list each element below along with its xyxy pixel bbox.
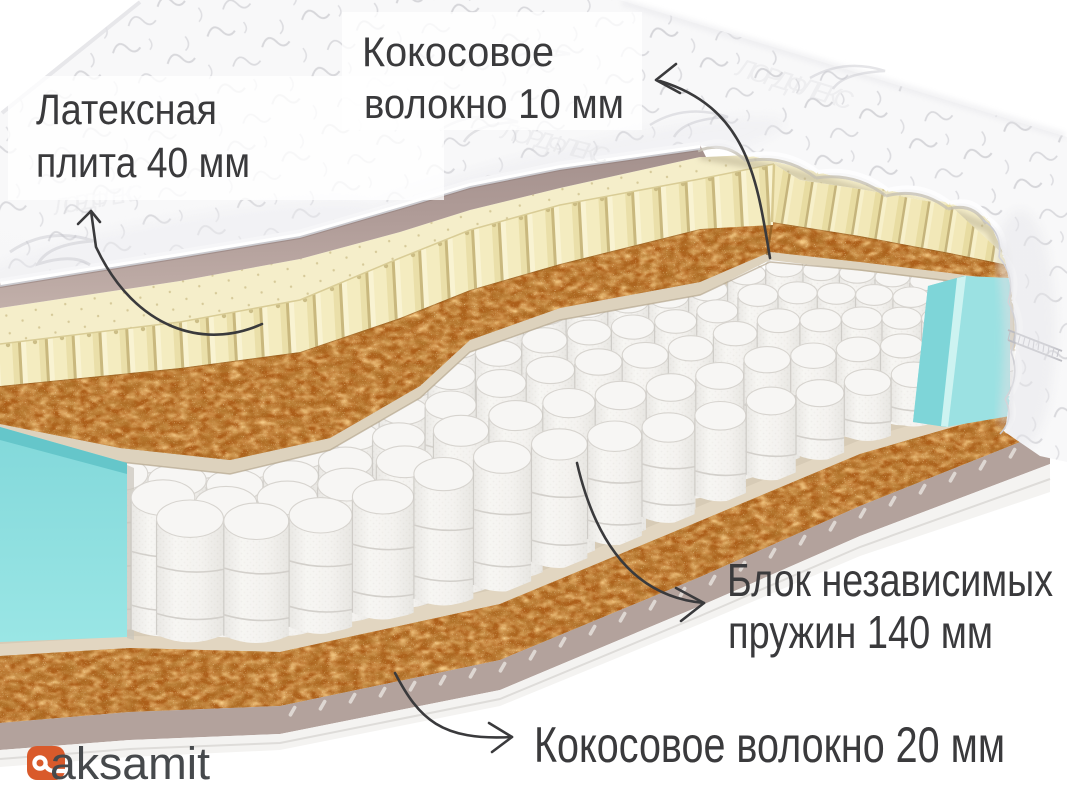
- svg-text:aksamit: aksamit: [50, 738, 211, 789]
- svg-text:Кокосовое волокно 20 мм: Кокосовое волокно 20 мм: [534, 717, 1005, 773]
- svg-text:Кокосовое: Кокосовое: [362, 28, 554, 75]
- svg-text:плита 40 мм: плита 40 мм: [36, 139, 250, 187]
- svg-text:волокно 10 мм: волокно 10 мм: [364, 80, 624, 127]
- svg-text:Блок независимых: Блок независимых: [727, 554, 1053, 606]
- svg-text:Латексная: Латексная: [36, 86, 217, 134]
- svg-text:пружин 140 мм: пружин 140 мм: [728, 606, 993, 658]
